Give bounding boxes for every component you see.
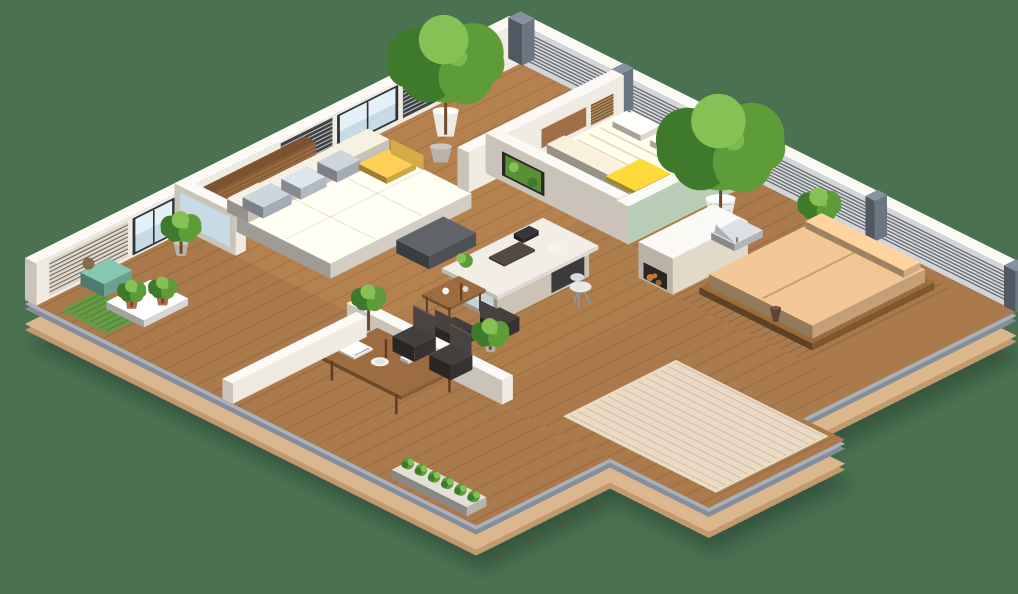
- isometric-apartment-scene: [0, 0, 1018, 594]
- floorplan-render-canvas: 3D isometric cutaway floor plan render o…: [0, 0, 1018, 594]
